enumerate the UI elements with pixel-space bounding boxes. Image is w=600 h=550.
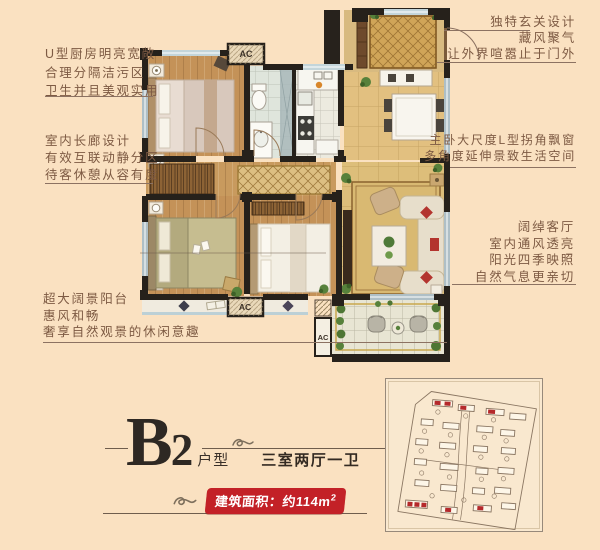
title-rule-left (105, 448, 128, 449)
ac-label-bottom: AC (239, 302, 251, 312)
annotation-master-bedroom: 主卧大尺度L型拐角飘窗 多角度延伸景致生活空间 (424, 133, 576, 164)
patio-chair (368, 316, 385, 332)
plan-code-letter: B (126, 408, 171, 478)
flourish-icon (172, 494, 198, 509)
annotation-kitchen: U型厨房明亮宽敞 合理分隔洁污区 卫生并且美观实用 (45, 45, 159, 101)
wardrobe (150, 164, 214, 194)
tv-cabinet (343, 210, 352, 286)
annotation-line: U型厨房明亮宽敞 (45, 45, 159, 64)
site-highlighted-units (407, 399, 495, 514)
leader-line (437, 62, 576, 63)
annotation-line: 超大阔景阳台 (43, 291, 200, 308)
leader-line (450, 167, 576, 168)
annotation-line: 藏风聚气 (447, 30, 576, 46)
annotation-line: 室内通风透亮 (475, 236, 575, 253)
ac-label-side: AC (318, 333, 329, 342)
annotation-balcony: 超大阔景阳台 惠风和畅 奢享自然观景的休闲意趣 (43, 291, 200, 341)
annotation-line: 合理分隔洁污区 (45, 64, 159, 83)
stove (298, 116, 314, 140)
kitchen-sink (298, 92, 312, 105)
ac-label-top: AC (240, 49, 253, 59)
patio-chair (410, 316, 427, 332)
annotation-living-room: 阔绰客厅 室内通风透亮 阳光四季映照 自然气息更亲切 (475, 219, 575, 285)
annotation-line: 室内长廊设计 (45, 133, 159, 150)
site-plan-map (387, 380, 543, 530)
plan-title: B 2 户型 三室两厅一卫 (126, 408, 360, 478)
shoe-cabinet (357, 14, 367, 68)
annotation-line: 待客休憩从容有度 (45, 167, 159, 184)
plan-code-number: 2 (171, 428, 194, 473)
area-badge-row: 建筑面积：约114m2 (170, 488, 345, 514)
annotation-entry: 独特玄关设计 藏风聚气 让外界喧嚣止于门外 (447, 14, 576, 62)
area-text: 建筑面积：约114m (214, 494, 331, 509)
annotation-line: 主卧大尺度L型拐角飘窗 (424, 133, 576, 149)
annotation-line: 奢享自然观景的休闲意趣 (43, 324, 200, 341)
leader-line (43, 342, 447, 343)
annotation-line: 独特玄关设计 (447, 14, 576, 30)
annotation-line: 有效互联动静分区 (45, 150, 159, 167)
site-plan-thumbnail (385, 378, 543, 532)
area-superscript: 2 (330, 493, 337, 503)
rooms-label: 三室两厅一卫 (261, 449, 360, 470)
area-badge: 建筑面积：约114m2 (205, 488, 347, 514)
annotation-line: 阔绰客厅 (475, 219, 575, 236)
annotation-line: 自然气息更亲切 (475, 269, 575, 286)
toilet (252, 84, 266, 91)
annotation-line: 阳光四季映照 (475, 252, 575, 269)
annotation-line: 惠风和畅 (43, 308, 200, 325)
annotation-line: 让外界喧嚣止于门外 (447, 46, 576, 62)
fridge-duct (324, 10, 340, 64)
flourish-icon (231, 436, 255, 450)
annotation-line: 卫生并且美观实用 (45, 82, 159, 101)
plan-type-label: 户型 (197, 449, 229, 470)
fruit-bowl (316, 82, 322, 88)
annotation-corridor: 室内长廊设计 有效互联动静分区 待客休憩从容有度 (45, 133, 159, 184)
annotation-line: 多角度延伸景致生活空间 (424, 149, 576, 165)
